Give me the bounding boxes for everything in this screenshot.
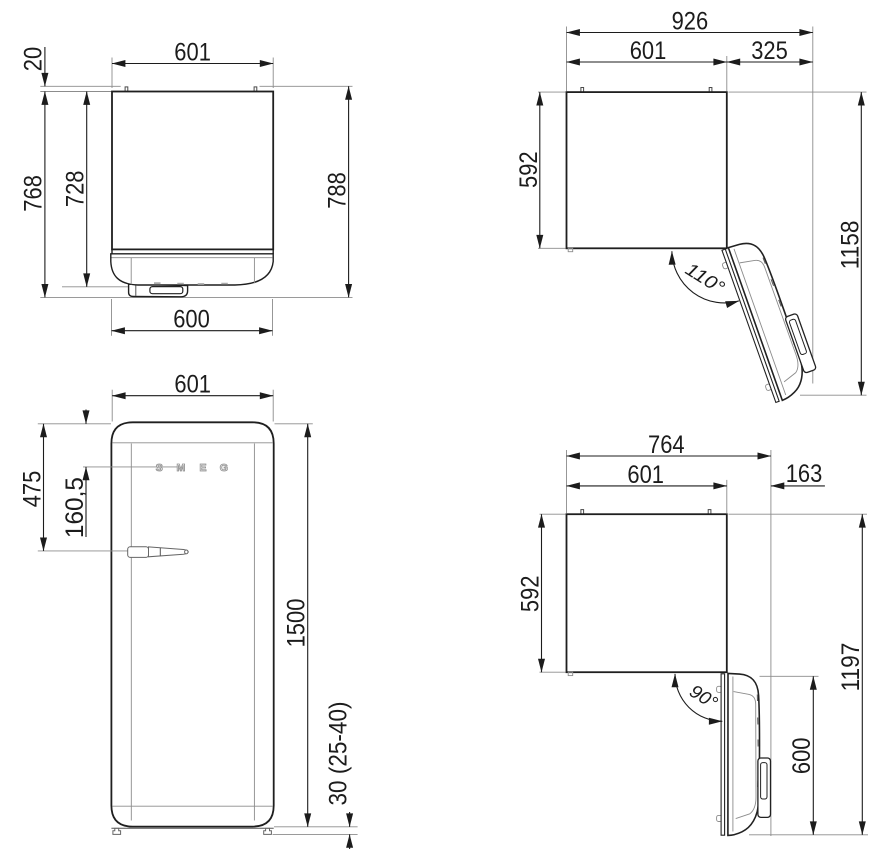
svg-text:E: E (199, 462, 206, 474)
svg-text:G: G (220, 462, 228, 474)
svg-text:600: 600 (788, 738, 816, 775)
svg-text:20: 20 (20, 47, 48, 71)
svg-text:601: 601 (174, 38, 211, 66)
svg-text:163: 163 (786, 460, 823, 488)
svg-text:592: 592 (517, 576, 545, 613)
svg-text:600: 600 (173, 306, 210, 334)
svg-text:592: 592 (515, 151, 543, 188)
svg-text:728: 728 (62, 171, 90, 208)
svg-text:1158: 1158 (836, 221, 864, 270)
svg-text:601: 601 (174, 371, 211, 399)
svg-text:1500: 1500 (283, 599, 311, 648)
svg-text:1197: 1197 (837, 643, 865, 692)
svg-text:S: S (156, 462, 163, 474)
svg-text:475: 475 (18, 471, 46, 508)
svg-text:601: 601 (627, 461, 664, 489)
svg-text:90°: 90° (686, 680, 722, 713)
svg-text:764: 764 (648, 431, 685, 459)
svg-text:788: 788 (324, 172, 352, 209)
svg-text:325: 325 (751, 37, 788, 65)
svg-text:601: 601 (630, 37, 667, 65)
svg-text:30 (25-40): 30 (25-40) (325, 702, 353, 806)
svg-text:160,5: 160,5 (61, 477, 89, 538)
svg-text:768: 768 (20, 175, 48, 212)
svg-text:M: M (177, 462, 186, 474)
svg-text:110°: 110° (682, 258, 729, 298)
svg-text:926: 926 (672, 7, 709, 35)
